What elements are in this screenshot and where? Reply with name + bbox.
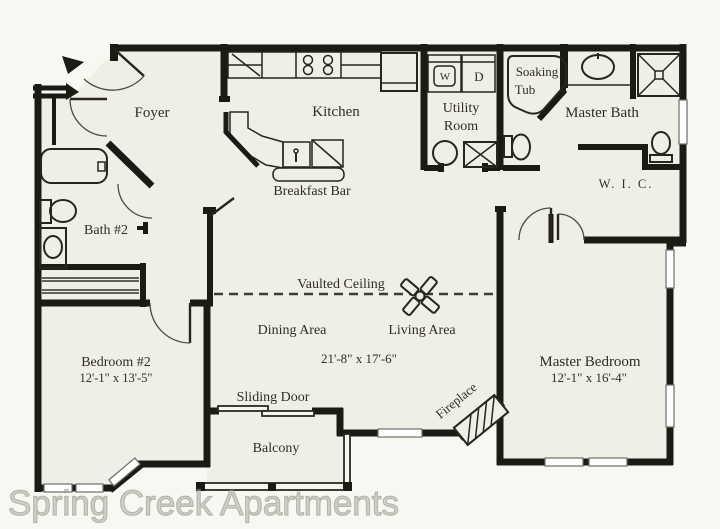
label-living-dims: 21'-8" x 17'-6" [321,351,397,366]
label-utility-1: Utility [443,101,480,116]
label-breakfast-bar: Breakfast Bar [273,184,351,199]
label-sliding-door: Sliding Door [237,390,310,405]
floor-plan-drawing: Foyer Kitchen Utility Room W D Soaking T… [0,0,720,529]
label-soaking-1: Soaking [516,64,559,79]
label-foyer: Foyer [135,105,170,121]
floor-plan: Foyer Kitchen Utility Room W D Soaking T… [0,0,720,529]
label-vaulted-ceiling: Vaulted Ceiling [297,277,385,292]
label-dryer: D [474,69,483,84]
label-wic: W. I. C. [599,177,654,191]
label-living-area: Living Area [388,323,456,338]
label-soaking-2: Tub [515,82,535,97]
label-balcony: Balcony [253,441,300,456]
label-master-bedroom: Master Bedroom [539,354,641,370]
label-bedroom2-dims: 12'-1" x 13'-5" [79,371,152,385]
label-bath2: Bath #2 [84,223,128,238]
label-master-bath: Master Bath [565,105,639,121]
label-washer: W [440,71,451,83]
entry-arrow-icon [62,56,84,74]
label-master-bedroom-dims: 12'-1" x 16'-4" [551,370,627,385]
label-utility-2: Room [444,119,478,134]
label-dining-area: Dining Area [258,323,328,338]
label-kitchen: Kitchen [312,104,360,120]
label-bedroom2: Bedroom #2 [81,355,151,370]
